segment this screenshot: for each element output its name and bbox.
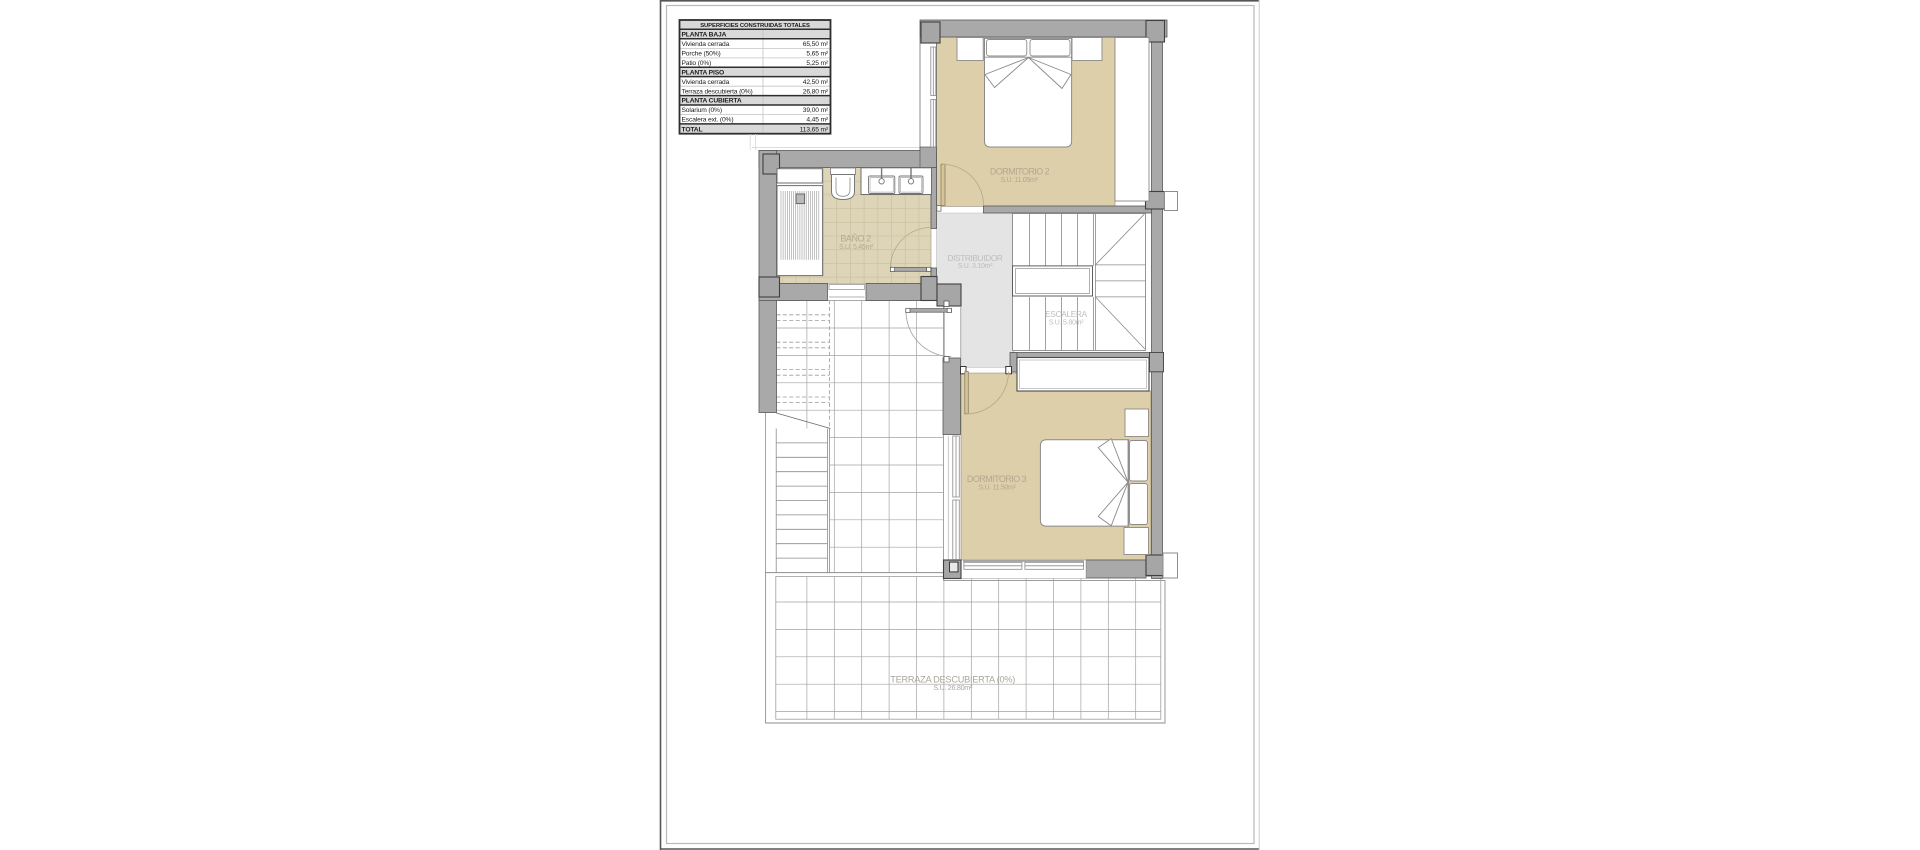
svg-text:26,80 m²: 26,80 m² — [803, 88, 829, 95]
svg-text:5,25 m²: 5,25 m² — [806, 60, 829, 67]
svg-text:Patio (0%): Patio (0%) — [682, 60, 712, 67]
svg-text:113,65 m²: 113,65 m² — [800, 127, 829, 134]
svg-text:S.U. 5.45m²: S.U. 5.45m² — [839, 244, 874, 251]
svg-text:BAÑO 2: BAÑO 2 — [840, 233, 871, 243]
svg-text:5,65 m²: 5,65 m² — [806, 50, 829, 57]
svg-text:Terraza descubierta (0%): Terraza descubierta (0%) — [682, 88, 753, 95]
svg-text:S.U. 11.05m²: S.U. 11.05m² — [1000, 177, 1038, 184]
svg-text:Solarium (0%): Solarium (0%) — [682, 107, 722, 114]
svg-text:S.U. 11.50m²: S.U. 11.50m² — [978, 485, 1016, 492]
svg-text:S.U. 3.10m²: S.U. 3.10m² — [958, 263, 994, 270]
svg-text:DISTRIBUIDOR: DISTRIBUIDOR — [947, 254, 1002, 263]
svg-text:PLANTA CUBIERTA: PLANTA CUBIERTA — [682, 98, 742, 105]
svg-text:SUPERFICIES CONSTRUIDAS TOTALE: SUPERFICIES CONSTRUIDAS TOTALES — [700, 23, 810, 29]
svg-text:S.U. 26.80m²: S.U. 26.80m² — [933, 683, 973, 692]
svg-text:39,00 m²: 39,00 m² — [803, 107, 829, 114]
svg-text:PLANTA PISO: PLANTA PISO — [682, 69, 725, 76]
svg-text:S.U. 5.80m²: S.U. 5.80m² — [1049, 320, 1085, 327]
svg-text:PLANTA BAJA: PLANTA BAJA — [682, 31, 727, 38]
svg-text:42,50 m²: 42,50 m² — [803, 79, 829, 86]
svg-text:Escalera ext. (0%): Escalera ext. (0%) — [682, 117, 734, 124]
svg-text:65,50 m²: 65,50 m² — [803, 41, 829, 48]
svg-text:Vivienda cerrada: Vivienda cerrada — [682, 41, 730, 48]
svg-text:Porche (50%): Porche (50%) — [682, 50, 721, 57]
svg-text:TOTAL: TOTAL — [682, 127, 703, 134]
svg-text:4,45 m²: 4,45 m² — [806, 117, 829, 124]
svg-text:ESCALERA: ESCALERA — [1045, 310, 1087, 319]
svg-text:Vivienda cerrada: Vivienda cerrada — [682, 79, 730, 86]
svg-text:DORMITORIO 2: DORMITORIO 2 — [990, 166, 1050, 176]
svg-text:DORMITORIO 3: DORMITORIO 3 — [967, 474, 1027, 484]
